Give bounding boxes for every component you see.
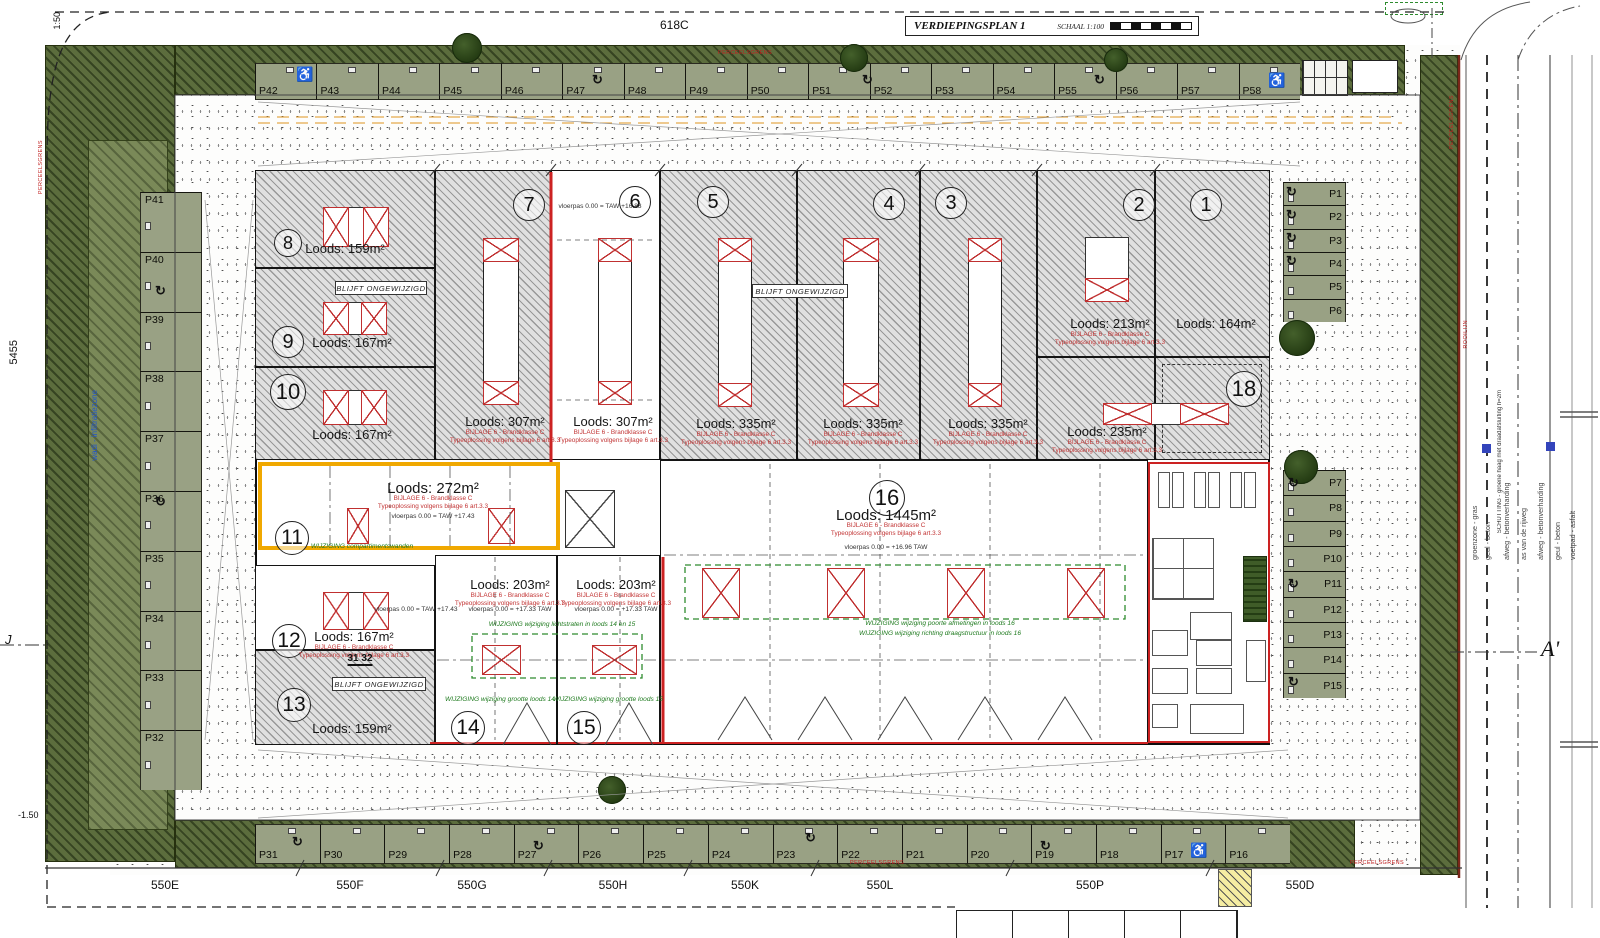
parking-stall-label: P3 xyxy=(1329,235,1342,247)
wadi-label: wadi - infiltratiezone xyxy=(90,390,99,461)
street-label-550p: 550P xyxy=(1076,878,1104,892)
road-area xyxy=(1461,0,1600,938)
parking-stall-p36: P36 xyxy=(140,491,202,551)
wheelchair-icon: ♿ xyxy=(1190,842,1207,859)
unit-u6-level: vloerpas 0.00 = TAW +16.83 xyxy=(558,203,641,210)
unit-u13-area-label: Loods: 159m² xyxy=(312,721,392,736)
shaft-structure xyxy=(968,238,1002,407)
turn-arrow-icon: ↻ xyxy=(1094,72,1105,88)
parking-stall-label: P12 xyxy=(1323,604,1342,616)
parking-stall-p13: P13 xyxy=(1283,622,1346,647)
road-lane-label: as van de rijweg xyxy=(1519,508,1528,560)
parking-stall-p43: P43 xyxy=(316,63,377,100)
parking-stall-label: P1 xyxy=(1329,188,1342,200)
unit-u6-area-label: Loods: 307m² xyxy=(573,414,653,429)
parking-stall-p38: P38 xyxy=(140,371,202,431)
skylight-box xyxy=(592,645,637,675)
road-lane-label: afweg - betonverharding xyxy=(1536,482,1545,560)
skylight-box xyxy=(347,508,369,544)
unit-u14-number: 14 xyxy=(451,711,485,745)
parking-stall-p21: P21 xyxy=(902,824,967,864)
unit-u16-level: vloerpas 0.00 = +16.96 TAW xyxy=(844,544,927,551)
parking-stall-p33: P33 xyxy=(140,670,202,730)
unit-u16-fire-note: BIJLAGE 6 - Brandklasse CTypeoplossing v… xyxy=(831,522,941,538)
turn-arrow-icon: ↻ xyxy=(1040,838,1051,854)
unit-u13-number: 13 xyxy=(277,688,311,722)
unit-u10-number: 10 xyxy=(270,374,306,410)
parking-stall-p10: P10 xyxy=(1283,546,1346,571)
office-furniture xyxy=(1190,612,1232,640)
office-furniture xyxy=(1244,472,1256,508)
unit-u8-area-label: Loods: 159m² xyxy=(305,241,385,256)
roof-structure-end xyxy=(361,390,387,425)
turn-arrow-icon: ↻ xyxy=(1288,674,1299,690)
parking-stall-p45: P45 xyxy=(439,63,500,100)
office-furniture xyxy=(1208,472,1220,508)
parking-stall-label: P16 xyxy=(1229,849,1248,861)
unit-u1-area-label: Loods: 164m² xyxy=(1176,316,1256,331)
unit-u16-change-note2: WIJZIGING wijziging richting draagstruct… xyxy=(859,630,1021,637)
unit-u3-fire-note: BIJLAGE 6 - Brandklasse CTypeoplossing v… xyxy=(933,431,1043,447)
unit-u15-number: 15 xyxy=(567,711,601,745)
wheelchair-icon: ♿ xyxy=(296,66,313,83)
shaft-structure xyxy=(598,238,632,405)
parking-stall-label: P9 xyxy=(1329,528,1342,540)
parking-stall-p16: P16 xyxy=(1225,824,1290,864)
office-furniture xyxy=(1190,704,1244,734)
parking-stall-label: P21 xyxy=(906,849,925,861)
street-label-550e: 550E xyxy=(151,878,179,892)
parking-stall-label: P32 xyxy=(145,732,164,744)
parking-stall-label: P45 xyxy=(443,85,462,97)
street-label-550d: 550D xyxy=(1286,878,1315,892)
parking-stall-label: P57 xyxy=(1181,85,1200,97)
parking-stall-p32: P32 xyxy=(140,730,202,790)
shaft-top xyxy=(843,238,879,262)
turn-arrow-icon: ↻ xyxy=(1288,576,1299,592)
turn-arrow-icon: ↻ xyxy=(155,494,166,510)
parking-stall-p28: P28 xyxy=(449,824,514,864)
unit-u14-change-note: WIJZIGING wijziging grootte loods 14 xyxy=(445,696,555,703)
parking-stall-p53: P53 xyxy=(931,63,992,100)
parking-stall-p48: P48 xyxy=(624,63,685,100)
parcel-boundary-label-top: PERCEELSGRENS xyxy=(718,50,772,56)
utility-cabin xyxy=(1352,60,1398,93)
parking-stall-p39: P39 xyxy=(140,312,202,372)
road-lane-label: afweg - betonverharding xyxy=(1502,482,1511,560)
parking-stall-p22: P22 xyxy=(837,824,902,864)
parking-stall-label: P23 xyxy=(777,849,796,861)
parking-stall-label: P41 xyxy=(145,194,164,206)
parking-stall-label: P17 xyxy=(1165,849,1184,861)
parcel-boundary-label-left: PERCEELSGRENS xyxy=(38,140,44,194)
unit-u4-fire-note: BIJLAGE 6 - Brandklasse CTypeoplossing v… xyxy=(808,431,918,447)
turn-arrow-icon: ↻ xyxy=(292,834,303,850)
unchanged-note-unit9: BLIJFT ONGEWIJZIGD xyxy=(335,281,427,295)
roof-structure-end xyxy=(1085,278,1129,302)
parking-stall-p24: P24 xyxy=(708,824,773,864)
parking-stall-p50: P50 xyxy=(747,63,808,100)
parking-stall-label: P14 xyxy=(1323,654,1342,666)
shaft-structure xyxy=(843,238,879,407)
parking-stall-label: P10 xyxy=(1323,553,1342,565)
parking-stall-label: P30 xyxy=(324,849,343,861)
parking-stall-label: P42 xyxy=(259,85,278,97)
tree xyxy=(598,776,626,804)
office-furniture xyxy=(1152,704,1178,728)
parking-stall-p49: P49 xyxy=(685,63,746,100)
unit-u9-area-label: Loods: 167m² xyxy=(312,335,392,350)
roof-structure-end xyxy=(361,302,387,335)
parking-stall-p18: P18 xyxy=(1096,824,1161,864)
tree xyxy=(1104,48,1128,72)
skylight-box xyxy=(947,568,985,618)
section-marker-j: J xyxy=(5,632,12,647)
turn-arrow-icon: ↻ xyxy=(805,830,816,846)
parking-stall-label: P44 xyxy=(382,85,401,97)
road-lane-label: geul - beton xyxy=(1483,522,1492,560)
bicycle-shed xyxy=(1302,60,1348,96)
parking-stall-label: P49 xyxy=(689,85,708,97)
parking-stall-label: P8 xyxy=(1329,502,1342,514)
parking-stall-label: P28 xyxy=(453,849,472,861)
parking-stall-label: P6 xyxy=(1329,305,1342,317)
office-furniture xyxy=(1196,640,1232,666)
parking-stall-label: P31 xyxy=(259,849,278,861)
plan-scale: SCHAAL 1:100 xyxy=(1057,22,1104,31)
green-dashed-zone xyxy=(1385,2,1443,15)
parking-stall-label: P50 xyxy=(751,85,770,97)
parking-stall-label: P33 xyxy=(145,672,164,684)
parking-stall-p40: P40 xyxy=(140,252,202,312)
unit-u2b-fire-note: BIJLAGE 6 - Brandklasse CTypeoplossing v… xyxy=(1052,439,1162,455)
roof-structure-end xyxy=(323,302,349,335)
unit-u12-area-label: Loods: 167m² xyxy=(314,629,394,644)
unit-u18-number: 18 xyxy=(1226,371,1262,407)
road-lane-label: geul - beton xyxy=(1553,522,1562,560)
unit-u14-area-label: Loods: 203m² xyxy=(470,577,550,592)
parking-stall-p41: P41 xyxy=(140,192,202,252)
roof-structure-end xyxy=(1103,403,1152,425)
office-furniture xyxy=(1152,668,1188,694)
parking-stall-label: P2 xyxy=(1329,211,1342,223)
unit-u7-fire-note: BIJLAGE 6 - Brandklasse CTypeoplossing v… xyxy=(450,429,560,445)
parking-stall-p20: P20 xyxy=(967,824,1032,864)
parking-stall-label: P55 xyxy=(1058,85,1077,97)
parking-stall-label: P18 xyxy=(1100,849,1119,861)
street-label-550f: 550F xyxy=(336,878,363,892)
turn-arrow-icon: ↻ xyxy=(862,72,873,88)
parking-stall-p37: P37 xyxy=(140,431,202,491)
parking-stall-p44: P44 xyxy=(378,63,439,100)
unit-u6-fire-note: BIJLAGE 6 - Brandklasse CTypeoplossing v… xyxy=(558,429,668,445)
unit-u11-fire-note: BIJLAGE 6 - Brandklasse CTypeoplossing v… xyxy=(378,495,488,511)
parcel-boundary-label-bottom: PERCEELSGRENS xyxy=(850,860,904,866)
parcel-boundary-label-bottom2: PERCEELSGRENS xyxy=(1350,860,1404,866)
street-label-550g: 550G xyxy=(457,878,486,892)
unit-u7-area-label: Loods: 307m² xyxy=(465,414,545,429)
unit-u15-change-note: WIJZIGING wijziging grootte loods 15 xyxy=(553,696,663,703)
shaft-top xyxy=(718,238,752,262)
lichtstraten-note: WIJZIGING wijziging lichtstraten in lood… xyxy=(489,621,636,628)
unit-u8-number: 8 xyxy=(274,229,302,257)
skylight-box xyxy=(702,568,740,618)
parking-stall-label: P40 xyxy=(145,254,164,266)
parking-stall-label: P56 xyxy=(1120,85,1139,97)
parking-stall-label: P29 xyxy=(388,849,407,861)
parking-stall-label: P48 xyxy=(628,85,647,97)
turn-arrow-icon: ↻ xyxy=(592,72,603,88)
parking-stall-p25: P25 xyxy=(643,824,708,864)
plot-number: 618C xyxy=(660,18,689,32)
road-lane-label: voetpad - asfalt xyxy=(1568,511,1577,560)
unit-u9-number: 9 xyxy=(272,326,304,358)
parking-stall-p54: P54 xyxy=(993,63,1054,100)
parking-stall-label: P35 xyxy=(145,553,164,565)
section-marker-a: A' xyxy=(1541,636,1559,662)
parking-stall-p29: P29 xyxy=(384,824,449,864)
parcel-boundary-label-right: PERCEELSGRENS xyxy=(1449,95,1455,149)
parking-stall-p27: P27 xyxy=(514,824,579,864)
parking-stall-label: P13 xyxy=(1323,629,1342,641)
unit-u7-number: 7 xyxy=(513,189,545,221)
parking-stall-label: P46 xyxy=(505,85,524,97)
unit-u2b-area-label: Loods: 235m² xyxy=(1067,424,1147,439)
parking-stall-label: P53 xyxy=(935,85,954,97)
parking-stall-p8: P8 xyxy=(1283,495,1346,520)
plan-title: VERDIEPINGSPLAN 1 xyxy=(914,20,1026,32)
turn-arrow-icon: ↻ xyxy=(1286,184,1297,200)
shaft-bottom xyxy=(843,383,879,407)
unit-u6-number: 6 xyxy=(619,186,651,218)
turn-arrow-icon: ↻ xyxy=(1286,207,1297,223)
parking-stall-p9: P9 xyxy=(1283,521,1346,546)
parking-stall-label: P54 xyxy=(997,85,1016,97)
parking-stall-p34: P34 xyxy=(140,611,202,671)
skylight-box xyxy=(488,508,515,544)
skylight-box xyxy=(1067,568,1105,618)
parking-stall-label: P25 xyxy=(647,849,666,861)
wheelchair-icon: ♿ xyxy=(1268,72,1285,89)
parking-stall-p56: P56 xyxy=(1116,63,1177,100)
road-lane-label: groenzone - gras xyxy=(1470,506,1479,560)
unit-u5-fire-note: BIJLAGE 6 - Brandklasse CTypeoplossing v… xyxy=(681,431,791,447)
unit-u5-number: 5 xyxy=(697,186,729,218)
unit-u2-area-label: Loods: 213m² xyxy=(1070,316,1150,331)
office-furniture xyxy=(1158,472,1170,508)
tree xyxy=(452,33,482,63)
parking-stall-p14: P14 xyxy=(1283,647,1346,672)
dimension-5455: 5455 xyxy=(8,340,20,364)
unit-u12-dimension: 31 32 xyxy=(347,653,372,666)
schutting-note: SCHUTTING - groene haag met draadafsluit… xyxy=(1497,390,1503,533)
unit-u5-area-label: Loods: 335m² xyxy=(696,416,776,431)
unit-u2-number: 2 xyxy=(1123,189,1155,221)
office-furniture xyxy=(1152,630,1188,656)
unit-u4-number: 4 xyxy=(873,188,905,220)
yellow-hatched-zone xyxy=(1218,869,1252,907)
parking-stall-label: P52 xyxy=(874,85,893,97)
street-label-550l: 550L xyxy=(867,878,894,892)
parking-stall-p5: P5 xyxy=(1283,275,1346,298)
parking-stall-label: P38 xyxy=(145,373,164,385)
parking-stall-label: P5 xyxy=(1329,281,1342,293)
legend-strip xyxy=(956,910,1238,938)
tree xyxy=(1279,320,1315,356)
shaft-structure xyxy=(483,238,519,405)
street-label-550k: 550K xyxy=(731,878,759,892)
unit-u15-area-label: Loods: 203m² xyxy=(576,577,656,592)
turn-arrow-icon: ↻ xyxy=(1288,475,1299,491)
unit-u1-number: 1 xyxy=(1190,189,1222,221)
turn-arrow-icon: ↻ xyxy=(1286,253,1297,269)
skylight-box xyxy=(482,645,521,675)
unit-u3-number: 3 xyxy=(935,187,967,219)
shaft-top xyxy=(598,238,632,262)
unchanged-note-unit5: BLIJFT ONGEWIJZIGD xyxy=(752,284,848,298)
parking-stall-p12: P12 xyxy=(1283,597,1346,622)
rooilijn-label: ROOILIJN xyxy=(1463,320,1469,349)
unit-u11-level: vloerpas 0.00 = TAW +17.43 xyxy=(391,513,474,520)
stairwell xyxy=(1243,556,1267,622)
parking-stall-label: P58 xyxy=(1243,85,1262,97)
parking-stall-label: P47 xyxy=(566,85,585,97)
office-furniture xyxy=(1230,472,1242,508)
turn-arrow-icon: ↻ xyxy=(155,283,166,299)
roof-structure-end xyxy=(1180,403,1229,425)
parking-stall-p30: P30 xyxy=(320,824,385,864)
parking-stall-p31: P31 xyxy=(255,824,320,864)
roof-structure-end xyxy=(323,592,349,630)
office-furniture xyxy=(1172,472,1184,508)
toilet-block xyxy=(1152,538,1214,600)
parking-stall-label: P4 xyxy=(1329,258,1342,270)
shaft-top xyxy=(483,238,519,262)
parking-stall-p6: P6 xyxy=(1283,299,1346,322)
parking-stall-p26: P26 xyxy=(578,824,643,864)
unit-u10-area-label: Loods: 167m² xyxy=(312,427,392,442)
unit-u4-area-label: Loods: 335m² xyxy=(823,416,903,431)
green-strip-right xyxy=(1420,55,1458,875)
office-furniture xyxy=(1194,472,1206,508)
unit-u12-level: vloerpas 0.00 = TAW +17.43 xyxy=(374,606,457,613)
parking-stall-p52: P52 xyxy=(870,63,931,100)
parking-stall-label: P26 xyxy=(582,849,601,861)
parking-stall-label: P24 xyxy=(712,849,731,861)
parking-stall-label: P51 xyxy=(812,85,831,97)
parking-stall-label: P39 xyxy=(145,314,164,326)
turn-arrow-icon: ↻ xyxy=(533,838,544,854)
turn-arrow-icon: ↻ xyxy=(1286,230,1297,246)
parking-stall-label: P34 xyxy=(145,613,164,625)
shaft-top xyxy=(968,238,1002,262)
unit-u11-change-note: WIJZIGING compartimentswanden xyxy=(311,543,413,550)
street-label-550h: 550H xyxy=(599,878,628,892)
shaft-bottom xyxy=(718,383,752,407)
parking-stall-label: P37 xyxy=(145,433,164,445)
office-furniture xyxy=(1196,668,1232,694)
parking-stall-label: P20 xyxy=(971,849,990,861)
title-block: VERDIEPINGSPLAN 1 SCHAAL 1:100 xyxy=(905,16,1199,36)
parking-stall-p46: P46 xyxy=(501,63,562,100)
shaft-structure xyxy=(718,238,752,407)
shaft-bottom xyxy=(598,381,632,405)
unit-u14-level: vloerpas 0.00 = +17.33 TAW xyxy=(468,606,551,613)
level-label: -1.50 xyxy=(18,810,39,820)
skylight-box xyxy=(827,568,865,618)
unchanged-note-unit13: BLIJFT ONGEWIJZIGD xyxy=(332,677,426,691)
parking-stall-label: P11 xyxy=(1324,578,1342,590)
roof-structure-end xyxy=(323,390,349,425)
parking-stall-p55: P55 xyxy=(1054,63,1115,100)
unit-u3-area-label: Loods: 335m² xyxy=(948,416,1028,431)
office-furniture xyxy=(1246,640,1266,682)
parking-stall-label: P7 xyxy=(1329,477,1342,489)
tree xyxy=(840,44,868,72)
scale-bar xyxy=(1110,22,1192,30)
corner-scale-label: 1:50 xyxy=(52,12,62,30)
unit-u15-level: vloerpas 0.00 = +17.33 TAW xyxy=(574,606,657,613)
parking-stall-p57: P57 xyxy=(1177,63,1238,100)
parking-stall-label: P15 xyxy=(1323,680,1342,692)
unit-u16-change-note: WIJZIGING wijziging poorte afmetingen in… xyxy=(865,620,1015,627)
shaft-bottom xyxy=(483,381,519,405)
parking-stall-label: P43 xyxy=(320,85,339,97)
unit-u11-number: 11 xyxy=(275,521,309,555)
unit-u2-fire-note: BIJLAGE 6 - Brandklasse CTypeoplossing v… xyxy=(1055,331,1165,347)
site-plan: 618C VERDIEPINGSPLAN 1 SCHAAL 1:100 5455… xyxy=(0,0,1600,938)
stair-box xyxy=(565,490,615,548)
parking-stall-p35: P35 xyxy=(140,551,202,611)
shaft-bottom xyxy=(968,383,1002,407)
